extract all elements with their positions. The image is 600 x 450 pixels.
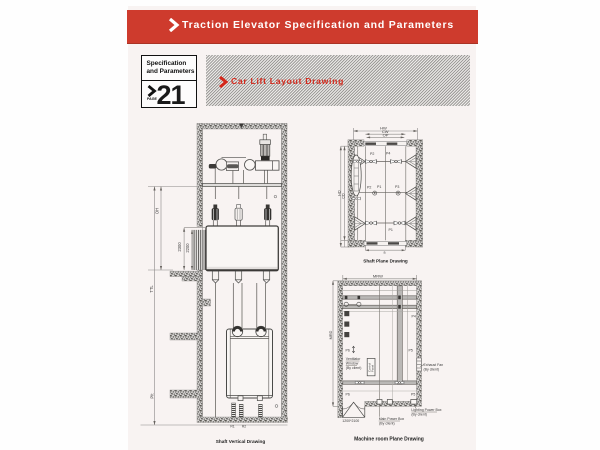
svg-text:(By client): (By client) [424, 368, 440, 372]
svg-text:a: a [384, 250, 386, 254]
svg-text:1200*2100: 1200*2100 [342, 419, 359, 423]
svg-text:P2: P2 [367, 186, 371, 190]
svg-text:Panel: Panel [371, 364, 375, 372]
svg-text:Shaft Vertical Drawing: Shaft Vertical Drawing [216, 439, 266, 444]
svg-text:CD: CD [342, 193, 346, 199]
svg-text:R2: R2 [242, 425, 246, 429]
svg-text:P3: P3 [395, 185, 399, 189]
svg-text:R1: R1 [230, 425, 234, 429]
svg-text:P6: P6 [346, 349, 350, 353]
svg-text:MRW: MRW [373, 274, 383, 279]
svg-text:2200: 2200 [185, 243, 190, 253]
svg-text:P6: P6 [346, 393, 350, 397]
svg-text:Shaft Plane Drawing: Shaft Plane Drawing [363, 258, 408, 263]
svg-text:P2: P2 [370, 152, 374, 156]
svg-text:Ventilator: Ventilator [346, 357, 361, 361]
svg-text:TTL: TTL [149, 285, 154, 293]
svg-text:PIt: PIt [150, 393, 155, 399]
svg-text:P5: P5 [411, 393, 415, 397]
svg-text:Machine room Plane Drawing: Machine room Plane Drawing [354, 436, 424, 442]
svg-text:P5: P5 [409, 349, 413, 353]
svg-text:2300: 2300 [177, 242, 182, 252]
svg-text:Main Power Box: Main Power Box [379, 417, 405, 421]
svg-text:P1: P1 [377, 185, 381, 189]
svg-text:(By client): (By client) [346, 366, 362, 370]
svg-text:Window: Window [346, 362, 359, 366]
svg-text:OP: OP [383, 133, 389, 138]
svg-text:MRD: MRD [329, 330, 333, 339]
svg-text:P1: P1 [389, 228, 393, 232]
svg-text:(By client): (By client) [379, 422, 395, 426]
svg-text:OH: OH [155, 208, 160, 214]
svg-text:P4: P4 [386, 152, 390, 156]
svg-text:(By client): (By client) [411, 413, 427, 417]
svg-text:Lighting Power Box: Lighting Power Box [411, 408, 441, 412]
svg-text:P4: P4 [412, 315, 416, 319]
svg-text:Exhaust Fan: Exhaust Fan [424, 363, 444, 367]
